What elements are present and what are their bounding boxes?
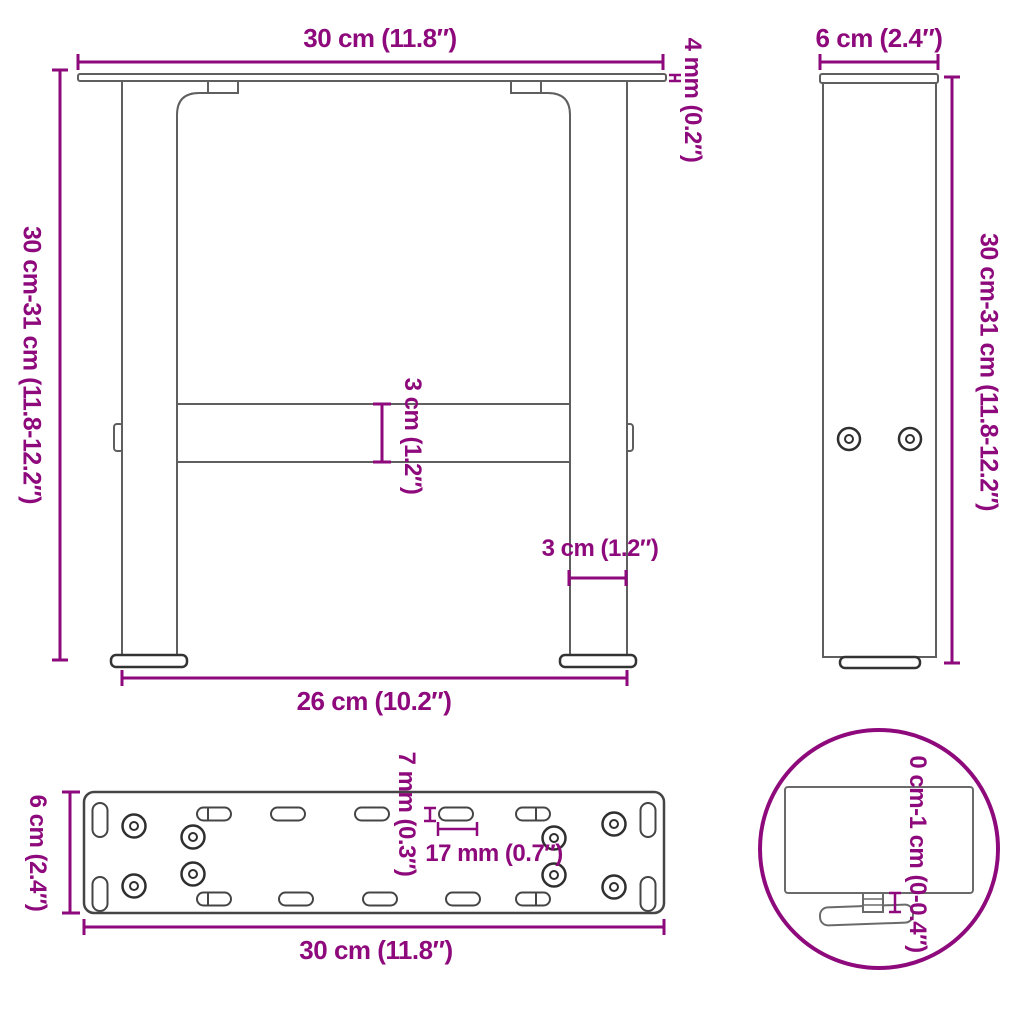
front-width-top-label: 30 cm (11.8″) <box>303 25 456 51</box>
rivet-right-center <box>906 435 914 443</box>
crossbar <box>177 404 570 462</box>
detail-adjustment-label: 0 cm-1 cm (0-0.4″) <box>905 755 929 952</box>
corner-slot <box>93 803 108 837</box>
top-view-drawing <box>62 792 664 935</box>
front-leg-width-label: 3 cm (1.2″) <box>542 537 659 561</box>
right-foot <box>560 655 636 667</box>
top-width-label: 30 cm (11.8″) <box>299 937 452 963</box>
corner-slot <box>641 803 656 837</box>
corner-slot <box>93 877 108 911</box>
front-view-drawing <box>52 54 681 686</box>
right-leg <box>511 81 627 655</box>
top-slot-width-label: 7 mm (0.3″) <box>394 752 418 877</box>
top-hole-spacing-label: 17 mm (0.7″) <box>425 842 563 866</box>
side-leg-body <box>823 83 936 657</box>
front-width-bottom-label: 26 cm (10.2″) <box>297 688 452 714</box>
table-top-plate <box>78 74 666 81</box>
dim-line-top-width <box>78 54 663 70</box>
side-height-label: 30 cm-31 cm (11.8-12.2″) <box>976 233 1001 511</box>
side-top-plate <box>820 74 938 83</box>
side-view-drawing <box>820 54 960 668</box>
top-depth-label: 6 cm (2.4″) <box>25 795 49 912</box>
left-foot <box>111 655 187 667</box>
front-height-label: 30 cm-31 cm (11.8-12.2″) <box>19 226 44 504</box>
dim-line-height <box>52 70 68 660</box>
corner-slot <box>641 877 656 911</box>
detail-adjuster-screw <box>863 893 883 912</box>
left-leg <box>122 81 238 655</box>
dim-line-side-height <box>944 77 960 663</box>
diagram-linework <box>0 0 1024 1024</box>
dimension-diagram: 30 cm (11.8″) 4 mm (0.2″) 30 cm-31 cm (1… <box>0 0 1024 1024</box>
dim-line-plate-width <box>84 919 664 935</box>
front-plate-thickness-label: 4 mm (0.2″) <box>680 38 704 163</box>
rivet-left-center <box>845 435 853 443</box>
dim-line-bottom-width <box>122 670 627 686</box>
side-foot <box>840 657 920 668</box>
front-crossbar-height-label: 3 cm (1.2″) <box>400 378 424 495</box>
dim-line-plate-depth <box>62 792 80 913</box>
detail-leg-bottom <box>785 787 973 893</box>
dim-line-side-depth <box>820 54 938 70</box>
side-depth-label: 6 cm (2.4″) <box>816 25 943 51</box>
detail-view-drawing <box>760 730 998 968</box>
